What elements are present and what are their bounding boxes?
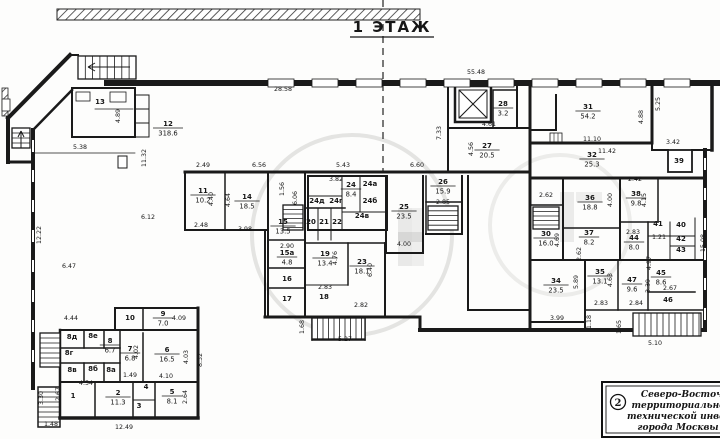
svg-text:24б: 24б bbox=[363, 197, 378, 205]
svg-text:18.5: 18.5 bbox=[239, 203, 254, 211]
dimension-label: 4.89 bbox=[115, 109, 122, 123]
room-label: 86.7 bbox=[100, 337, 120, 355]
room-label: 40 bbox=[676, 221, 686, 229]
svg-text:8.2: 8.2 bbox=[584, 239, 595, 247]
svg-text:8в: 8в bbox=[67, 366, 77, 374]
svg-text:10: 10 bbox=[125, 314, 135, 322]
dimension-label: 4.15 bbox=[641, 193, 648, 207]
svg-text:35: 35 bbox=[595, 268, 605, 276]
room-label: 97.0 bbox=[153, 310, 173, 328]
dimension-label: 3.39 bbox=[645, 279, 652, 293]
room-label: 16 bbox=[282, 275, 292, 283]
svg-text:8г: 8г bbox=[65, 349, 74, 357]
svg-text:11.3: 11.3 bbox=[110, 399, 125, 407]
dimension-label: 2.83 bbox=[594, 300, 608, 307]
dimension-label: 6.47 bbox=[62, 263, 76, 270]
svg-text:27: 27 bbox=[482, 142, 492, 150]
svg-text:1: 1 bbox=[71, 392, 76, 400]
svg-text:Северо-Восточно: Северо-Восточно bbox=[641, 390, 720, 400]
dimension-label: 5.27 bbox=[338, 336, 352, 343]
svg-text:38: 38 bbox=[631, 190, 641, 198]
dimension-label: 3.99 bbox=[550, 315, 564, 322]
svg-text:36: 36 bbox=[585, 194, 595, 202]
dimension-label: 4.00 bbox=[607, 193, 614, 207]
dimension-label: 4.00 bbox=[397, 241, 411, 248]
dimension-label: 2.83 bbox=[626, 229, 640, 236]
room-label: 24д bbox=[309, 197, 325, 205]
dimension-label: 2.42 bbox=[628, 176, 642, 183]
room-label: 24г bbox=[329, 197, 343, 205]
dimension-label: 4.56 bbox=[468, 142, 475, 156]
dimension-label: 4.03 bbox=[183, 350, 190, 364]
svg-text:8е: 8е bbox=[88, 332, 98, 340]
svg-text:3.2: 3.2 bbox=[498, 110, 509, 118]
svg-text:8д: 8д bbox=[67, 333, 78, 341]
dimension-label: 2.85 bbox=[436, 199, 450, 206]
room-label: 8а bbox=[106, 366, 116, 374]
dimension-label: 4.69 bbox=[554, 233, 561, 247]
room-label: 24а bbox=[363, 180, 378, 188]
room-label: 616.5 bbox=[154, 346, 179, 364]
dimension-label: 4.54 bbox=[79, 380, 93, 387]
svg-text:7: 7 bbox=[128, 345, 133, 353]
svg-text:25: 25 bbox=[399, 203, 409, 211]
dimension-label: 1.49 bbox=[123, 372, 137, 379]
svg-text:24д: 24д bbox=[309, 197, 325, 205]
dimension-label: 1.48 bbox=[44, 421, 58, 428]
room-label: 10 bbox=[125, 314, 135, 322]
svg-text:15.9: 15.9 bbox=[435, 188, 450, 196]
room-label: 42 bbox=[676, 235, 686, 243]
room-label: 458.6 bbox=[651, 269, 671, 287]
svg-text:32: 32 bbox=[587, 151, 597, 159]
svg-text:14: 14 bbox=[242, 193, 252, 201]
dimension-label: 2.82 bbox=[354, 302, 368, 309]
svg-text:318.6: 318.6 bbox=[158, 130, 177, 138]
plan-title: 1 ЭТАЖ bbox=[350, 18, 434, 37]
dimension-label: 11.42 bbox=[598, 148, 616, 155]
dimension-label: 2.62 bbox=[576, 247, 583, 261]
svg-text:города Москвы: города Москвы bbox=[637, 423, 718, 433]
stamp-number: 2 bbox=[615, 398, 622, 409]
svg-text:4: 4 bbox=[144, 383, 149, 391]
dimension-label: 6.06 bbox=[292, 191, 299, 205]
dimension-label: 6.56 bbox=[252, 162, 266, 169]
svg-text:22: 22 bbox=[332, 218, 342, 226]
dimension-label: 1.65 bbox=[616, 320, 623, 334]
svg-text:24г: 24г bbox=[329, 197, 343, 205]
dimension-label: 4.44 bbox=[64, 315, 78, 322]
svg-text:24: 24 bbox=[346, 181, 356, 189]
dimension-label: 1.21 bbox=[652, 234, 666, 241]
dimension-label: 3.82 bbox=[329, 176, 343, 183]
svg-text:16.0: 16.0 bbox=[538, 240, 553, 248]
svg-text:18.8: 18.8 bbox=[582, 204, 597, 212]
bti-stamp: 2 Северо-Восточно территориальное б техн… bbox=[602, 382, 720, 437]
svg-text:23: 23 bbox=[357, 258, 367, 266]
room-label: 3154.2 bbox=[575, 103, 600, 121]
dimension-label: 5.43 bbox=[336, 162, 350, 169]
room-label: 3 bbox=[137, 402, 142, 410]
dimension-label: 8.32 bbox=[197, 353, 204, 367]
svg-text:9.6: 9.6 bbox=[627, 286, 638, 294]
room-label: 12318.6 bbox=[153, 120, 183, 138]
svg-text:4.8: 4.8 bbox=[282, 259, 293, 267]
svg-text:8а: 8а bbox=[106, 366, 116, 374]
dimension-label: 3.42 bbox=[666, 139, 680, 146]
dimension-label: 1.18 bbox=[586, 315, 593, 329]
dimension-label: 1.56 bbox=[279, 182, 286, 196]
dimension-label: 4.97 bbox=[646, 256, 653, 270]
dimension-label: 2.48 bbox=[194, 222, 208, 229]
room-label: 13 bbox=[95, 98, 105, 106]
svg-text:6: 6 bbox=[165, 346, 170, 354]
svg-text:39: 39 bbox=[674, 157, 684, 165]
svg-text:28: 28 bbox=[498, 100, 508, 108]
dimension-label: 4.76 bbox=[332, 251, 339, 265]
dimension-label: 55.48 bbox=[467, 69, 485, 76]
dimension-label: 2.62 bbox=[539, 192, 553, 199]
svg-text:42: 42 bbox=[676, 235, 686, 243]
svg-text:34: 34 bbox=[551, 277, 561, 285]
svg-text:30: 30 bbox=[541, 230, 551, 238]
room-label: 41 bbox=[653, 220, 663, 228]
room-label: 378.2 bbox=[579, 229, 599, 247]
svg-text:5: 5 bbox=[170, 388, 175, 396]
dimension-label: 2.49 bbox=[196, 162, 210, 169]
svg-text:13.4: 13.4 bbox=[317, 260, 332, 268]
dimension-label: 28.58 bbox=[274, 86, 292, 93]
room-label: 24в bbox=[355, 212, 370, 220]
dimension-label: 2.83 bbox=[318, 284, 332, 291]
svg-text:16: 16 bbox=[282, 275, 292, 283]
floor-plan-drawing: 1 ЭТАЖ 12318.6131110.21418.51513.515а4.8… bbox=[0, 0, 720, 439]
svg-text:31: 31 bbox=[583, 103, 593, 111]
dimension-label: 6.12 bbox=[141, 214, 155, 221]
svg-text:16.5: 16.5 bbox=[159, 356, 174, 364]
floor-plan-page: 1 ЭТАЖ 12318.6131110.21418.51513.515а4.8… bbox=[0, 0, 720, 439]
svg-text:15: 15 bbox=[278, 218, 288, 226]
dimension-label: 11.32 bbox=[141, 149, 148, 167]
dimension-label: 2.84 bbox=[629, 300, 643, 307]
svg-text:23.5: 23.5 bbox=[396, 213, 411, 221]
room-label: 8д bbox=[67, 333, 78, 341]
dimension-label: 5.89 bbox=[573, 275, 580, 289]
svg-text:8.1: 8.1 bbox=[167, 398, 178, 406]
dimension-label: 5.38 bbox=[73, 144, 87, 151]
svg-text:15а: 15а bbox=[280, 249, 295, 257]
dimension-label: 5.10 bbox=[648, 340, 662, 347]
room-label: 4 bbox=[144, 383, 149, 391]
dimension-label: 2.67 bbox=[55, 387, 62, 401]
room-label: 20 bbox=[306, 218, 316, 226]
svg-text:20: 20 bbox=[306, 218, 316, 226]
svg-text:2: 2 bbox=[116, 389, 121, 397]
dimension-label: 2.64 bbox=[182, 390, 189, 404]
dimension-label: 4.10 bbox=[159, 373, 173, 380]
dimension-label: 4.61 bbox=[482, 121, 496, 128]
room-label: 24б bbox=[363, 197, 378, 205]
svg-text:46: 46 bbox=[663, 296, 673, 304]
room-labels-layer: 12318.6131110.21418.51513.515а4.81617181… bbox=[65, 98, 686, 410]
svg-text:20.5: 20.5 bbox=[479, 152, 494, 160]
svg-text:технической инвентар: технической инвентар bbox=[627, 411, 720, 422]
svg-text:24в: 24в bbox=[355, 212, 370, 220]
dimension-label: 11.10 bbox=[583, 136, 601, 143]
dimension-label: 15.08 bbox=[700, 234, 707, 252]
room-label: 2720.5 bbox=[474, 142, 499, 160]
svg-text:9: 9 bbox=[161, 310, 166, 318]
svg-text:18: 18 bbox=[319, 293, 329, 301]
room-label: 58.1 bbox=[162, 388, 182, 406]
room-label: 43 bbox=[676, 246, 686, 254]
svg-text:8.0: 8.0 bbox=[629, 244, 640, 252]
room-label: 46 bbox=[663, 296, 673, 304]
svg-text:23.5: 23.5 bbox=[548, 287, 563, 295]
dimension-label: 3.98 bbox=[238, 226, 252, 233]
dimension-label: 2.67 bbox=[663, 285, 677, 292]
svg-text:1 ЭТАЖ: 1 ЭТАЖ bbox=[353, 18, 432, 36]
svg-text:7.0: 7.0 bbox=[158, 320, 169, 328]
svg-text:13.1: 13.1 bbox=[592, 278, 607, 286]
room-label: 21 bbox=[319, 218, 329, 226]
svg-text:37: 37 bbox=[584, 229, 594, 237]
dimension-label: 4.02 bbox=[133, 345, 140, 359]
room-label: 8в bbox=[67, 366, 77, 374]
room-label: 22 bbox=[332, 218, 342, 226]
svg-text:24а: 24а bbox=[363, 180, 378, 188]
svg-text:17: 17 bbox=[282, 295, 292, 303]
room-label: 248.4 bbox=[341, 181, 361, 199]
svg-text:40: 40 bbox=[676, 221, 686, 229]
svg-text:13: 13 bbox=[95, 98, 105, 106]
svg-text:территориальное б: территориальное б bbox=[631, 400, 720, 411]
svg-text:47: 47 bbox=[627, 276, 637, 284]
room-label: 1 bbox=[71, 392, 76, 400]
dimension-label: 4.63 bbox=[607, 273, 614, 287]
room-label: 283.2 bbox=[493, 100, 513, 118]
dimension-label: 5.25 bbox=[655, 97, 662, 111]
svg-text:3: 3 bbox=[137, 402, 142, 410]
dimension-label: 1.68 bbox=[299, 320, 306, 334]
room-label: 479.6 bbox=[622, 276, 642, 294]
svg-text:54.2: 54.2 bbox=[580, 113, 595, 121]
svg-text:8.4: 8.4 bbox=[346, 191, 357, 199]
dimension-label: 2.90 bbox=[280, 243, 294, 250]
svg-text:11: 11 bbox=[198, 187, 208, 195]
room-label: 15а4.8 bbox=[277, 249, 297, 267]
dimension-label: 7.33 bbox=[436, 126, 443, 140]
dimension-label: 4.40 bbox=[208, 192, 215, 206]
svg-text:21: 21 bbox=[319, 218, 329, 226]
dimension-label: 12.49 bbox=[115, 424, 133, 431]
dimension-label: 4.64 bbox=[225, 193, 232, 207]
dimension-label: 4.88 bbox=[638, 110, 645, 124]
room-label: 39 bbox=[674, 157, 684, 165]
svg-text:6.7: 6.7 bbox=[105, 347, 116, 355]
svg-text:45: 45 bbox=[656, 269, 666, 277]
dimension-label: 4.09 bbox=[172, 315, 186, 322]
room-label: 17 bbox=[282, 295, 292, 303]
room-label: 18 bbox=[319, 293, 329, 301]
room-label: 8б bbox=[88, 365, 98, 373]
dimension-label: 6.60 bbox=[410, 162, 424, 169]
svg-text:26: 26 bbox=[438, 178, 448, 186]
svg-text:9.8: 9.8 bbox=[631, 200, 642, 208]
svg-text:43: 43 bbox=[676, 246, 686, 254]
room-label: 8е bbox=[88, 332, 98, 340]
svg-text:25.3: 25.3 bbox=[584, 161, 599, 169]
dimension-label: 12.22 bbox=[36, 226, 43, 244]
svg-text:12: 12 bbox=[163, 120, 173, 128]
svg-text:8б: 8б bbox=[88, 365, 98, 373]
room-label: 8г bbox=[65, 349, 74, 357]
svg-text:8: 8 bbox=[108, 337, 113, 345]
svg-text:19: 19 bbox=[320, 250, 330, 258]
svg-text:41: 41 bbox=[653, 220, 663, 228]
dimension-label: 3.30 bbox=[38, 391, 45, 405]
svg-text:13.5: 13.5 bbox=[275, 228, 290, 236]
dimension-label: 6.40 bbox=[367, 263, 374, 277]
room-label: 211.3 bbox=[105, 389, 130, 407]
